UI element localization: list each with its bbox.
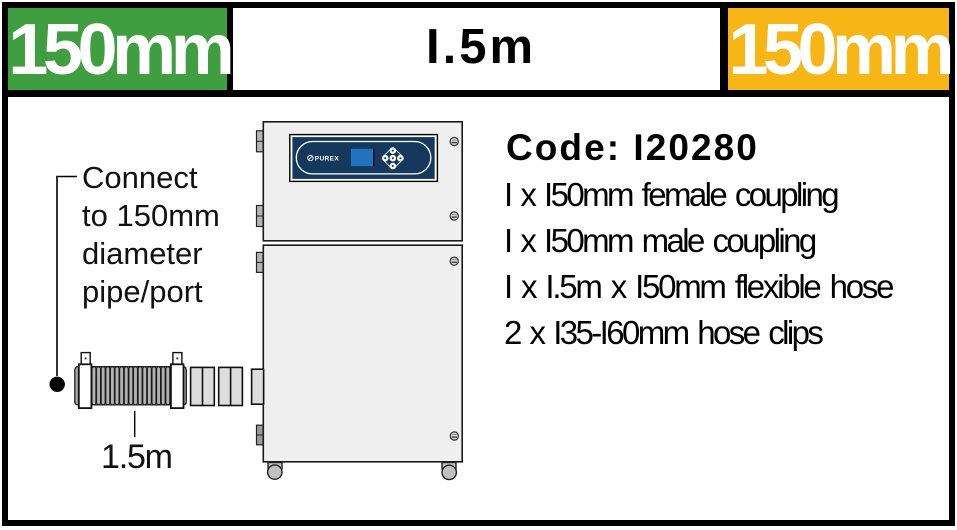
svg-text:PUREX: PUREX	[315, 155, 340, 162]
